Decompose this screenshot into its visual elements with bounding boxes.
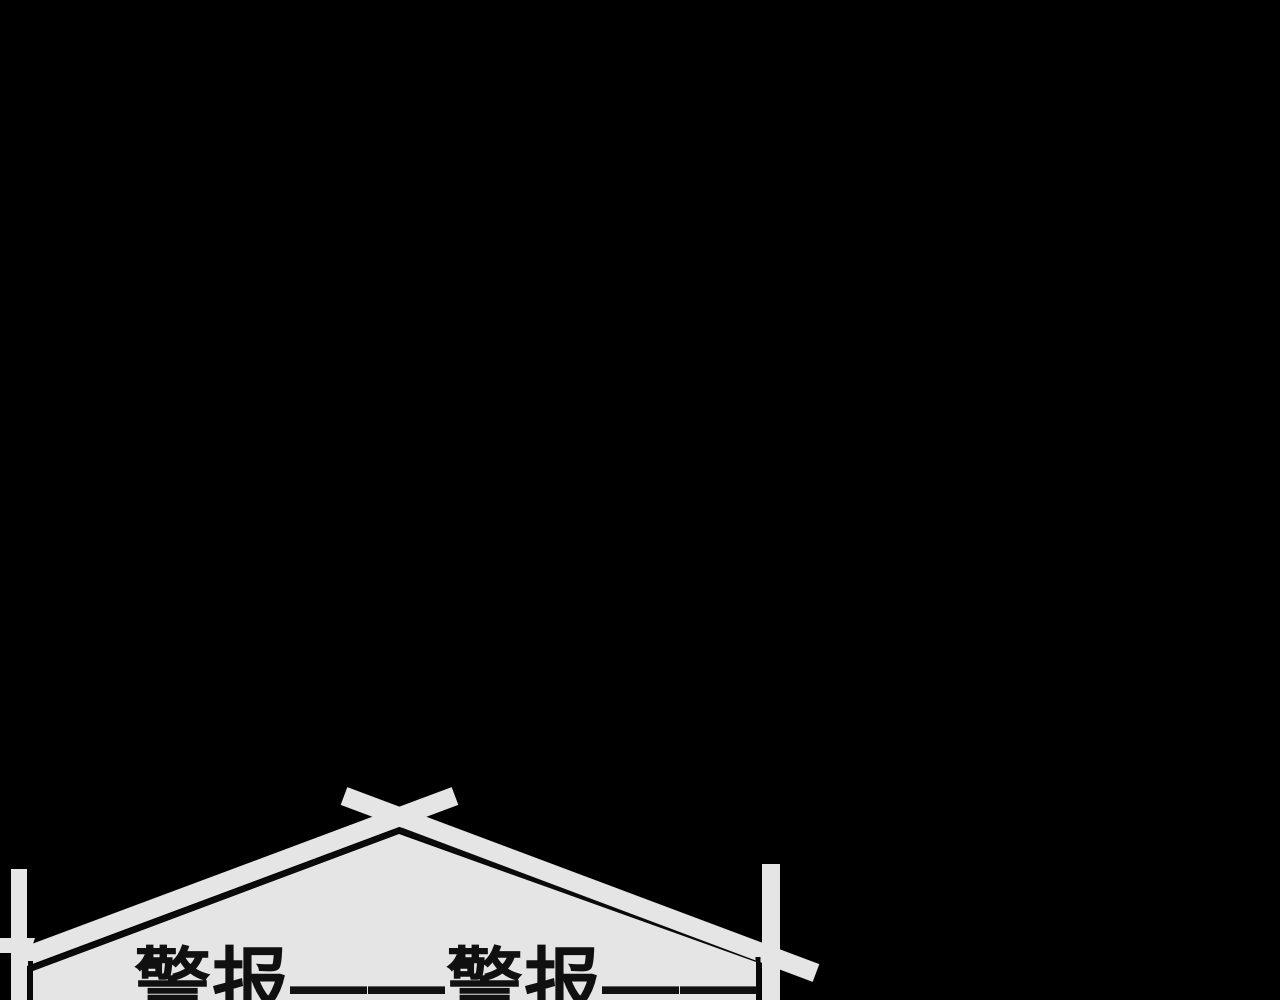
left-post — [11, 869, 27, 1000]
alert-text: 警报——警报—— — [134, 947, 758, 1000]
speech-bubble-graphic — [0, 0, 1280, 1000]
panel-background — [0, 0, 1280, 1000]
left-crossbar — [0, 938, 35, 953]
comic-panel: 警报——警报—— — [0, 0, 1280, 1000]
right-post — [762, 864, 780, 1000]
